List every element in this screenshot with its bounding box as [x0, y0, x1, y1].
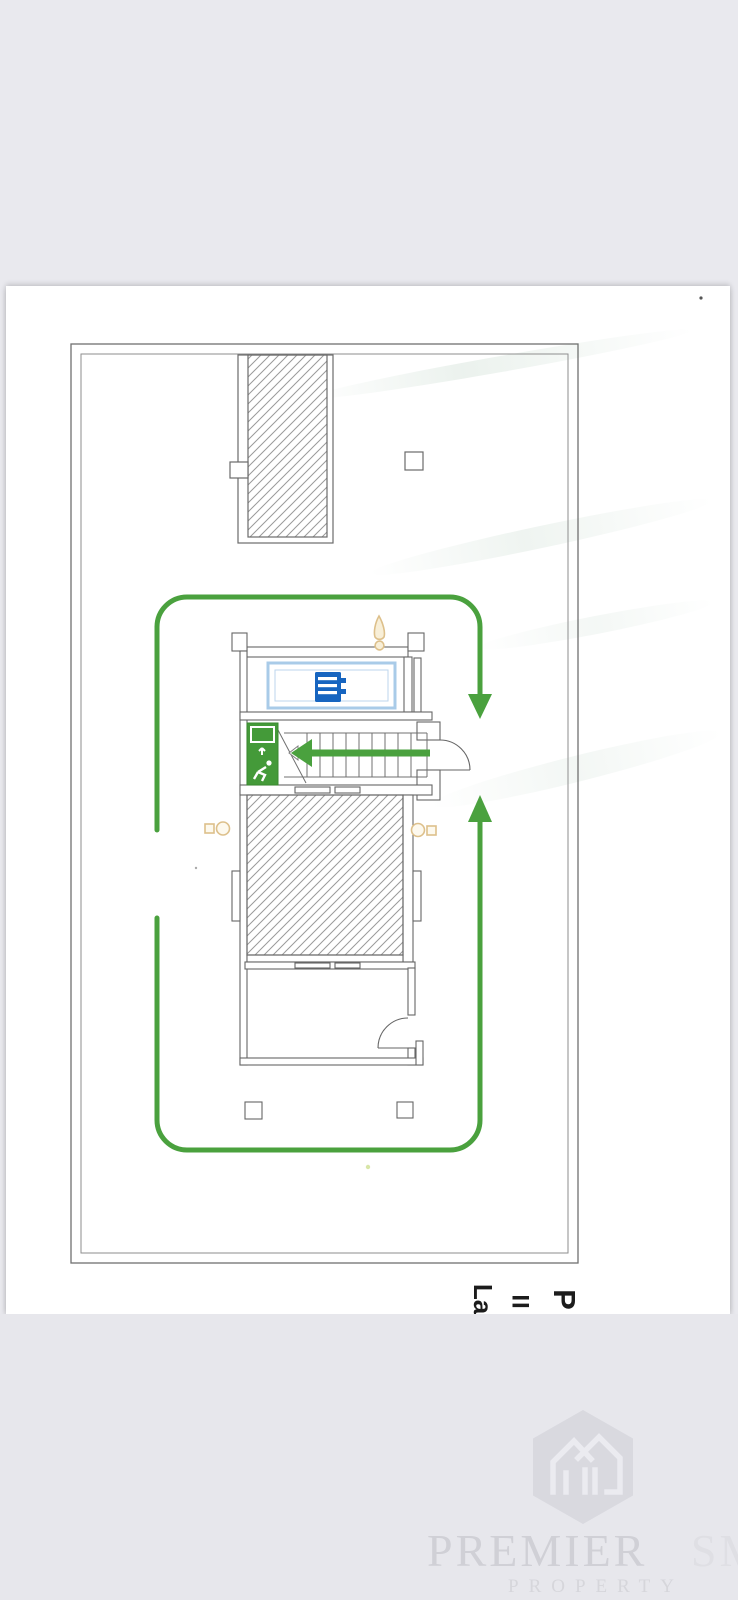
scan-speck	[366, 1165, 370, 1169]
door-right-of-stairs	[440, 740, 470, 770]
brand-word-property: PROPERTY	[508, 1576, 684, 1598]
watermark-area: PREMIER SMART PROPERTY	[0, 1314, 738, 1600]
shaft-hatched	[230, 355, 333, 543]
rotated-title-fragment-ii: II	[508, 1294, 532, 1309]
brand-word-smart: SMART	[691, 1525, 738, 1576]
brand-wordmark: PREMIER SMART	[427, 1524, 738, 1577]
ceiling-light-icon	[374, 616, 384, 650]
houses-logo-icon	[533, 1410, 633, 1524]
route-arrow-up	[468, 795, 492, 822]
column	[397, 1102, 413, 1118]
floor-plan-drawing	[6, 286, 730, 1314]
brand-word-premier: PREMIER	[427, 1525, 647, 1576]
premier-smart-hexagon-logo	[533, 1410, 633, 1524]
scanned-floor-plan-page: La II P	[6, 286, 730, 1314]
wall-tab	[230, 462, 248, 478]
rotated-title-fragment-la: La	[470, 1284, 496, 1314]
pool	[268, 663, 395, 708]
route-arrow-down	[468, 694, 492, 719]
emergency-exit-sign-icon	[247, 723, 278, 785]
wall-light-right-icon	[412, 824, 437, 837]
wall-light-left-icon	[205, 822, 230, 835]
exit-direction-arrow	[291, 739, 430, 767]
room-hatched	[247, 795, 403, 955]
scan-speck	[699, 296, 702, 299]
column	[245, 1102, 262, 1119]
rotated-title-fragment-p: P	[549, 1289, 580, 1310]
scan-speck	[195, 867, 197, 869]
door-bottom-room	[378, 1018, 408, 1048]
evacuation-route-arrowheads	[468, 694, 492, 822]
column	[405, 452, 423, 470]
scan-background-top	[0, 0, 738, 286]
